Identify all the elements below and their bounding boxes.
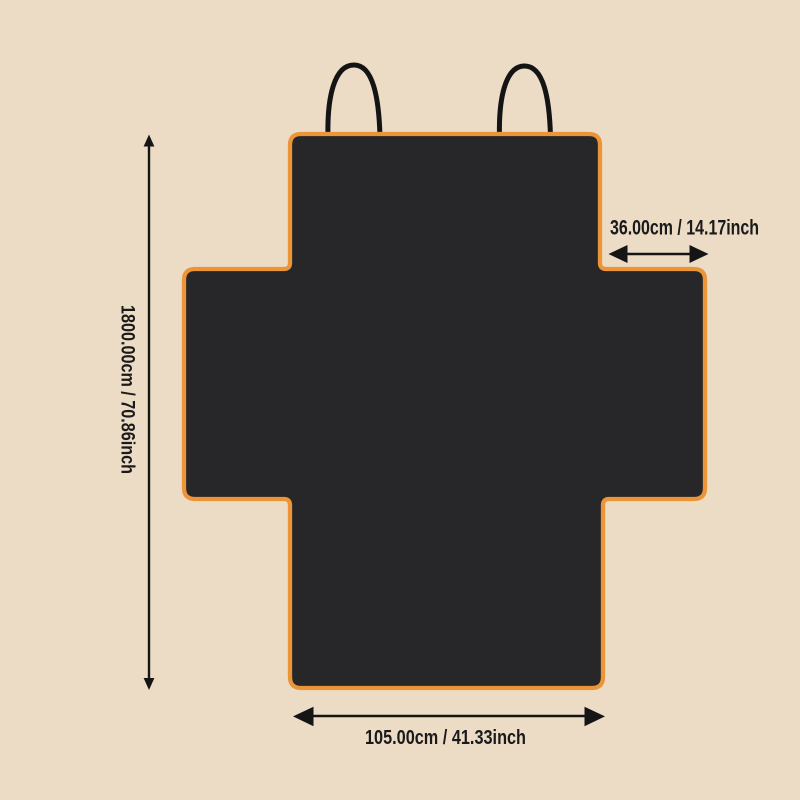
svg-text:1800.00cm / 70.86inch: 1800.00cm / 70.86inch — [117, 305, 139, 474]
svg-text:105.00cm / 41.33inch: 105.00cm / 41.33inch — [365, 726, 526, 749]
svg-text:36.00cm / 14.17inch: 36.00cm / 14.17inch — [610, 216, 759, 240]
